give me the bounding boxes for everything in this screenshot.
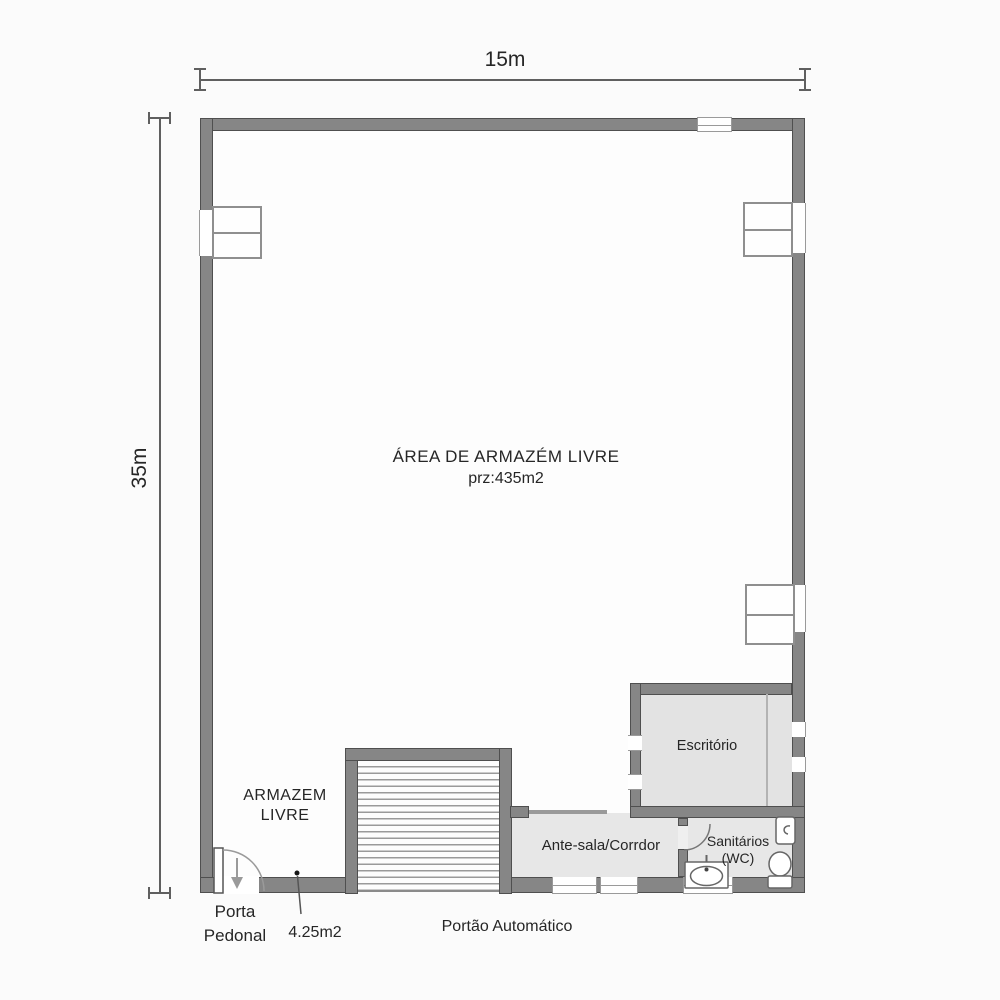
dimension-label-height: 35m xyxy=(128,433,152,503)
window-divider xyxy=(601,885,637,886)
ramp-wall-top xyxy=(345,748,512,761)
dimension-tick-top-left-serif-a xyxy=(194,68,206,70)
dimension-tick-top-right-serif-a xyxy=(799,68,811,70)
door-size-label: 4.25m2 xyxy=(274,924,356,942)
office-west-wall-window-2 xyxy=(628,774,642,790)
dimension-line-top xyxy=(200,79,805,81)
armazem-corner-label-line2: LIVRE xyxy=(225,807,345,825)
antesala-partition-wall xyxy=(527,810,607,814)
dimension-tick-left-bottom xyxy=(149,892,170,894)
pedestrian-door-label-line1: Porta xyxy=(183,902,287,922)
office-right-wall-window-2 xyxy=(791,757,806,772)
wc-wall-west-lower xyxy=(678,849,688,877)
pedestrian-door-opening xyxy=(214,876,259,894)
window-divider xyxy=(745,229,791,231)
office-right-wall-window-1 xyxy=(791,722,806,737)
office-wall-south xyxy=(630,806,805,818)
left-wall-window-icon xyxy=(212,206,262,259)
dimension-tick-top-right xyxy=(804,69,806,90)
bottom-wall-window-1 xyxy=(552,876,597,894)
dimension-line-left xyxy=(159,118,161,894)
bottom-wall-window-3 xyxy=(683,876,733,894)
window-divider xyxy=(684,885,732,886)
dimension-tick-left-bottom-serif-b xyxy=(169,887,171,899)
antesala-corner-post xyxy=(510,806,529,818)
gate-label: Portão Automático xyxy=(417,918,597,936)
window-divider xyxy=(553,885,596,886)
pedestrian-door-label-line2: Pedonal xyxy=(183,926,287,946)
ramp-wall-left xyxy=(345,748,358,894)
dimension-tick-left-top-serif-b xyxy=(169,112,171,124)
window-divider xyxy=(214,232,260,234)
right-wall-window-opening-1 xyxy=(791,203,806,253)
ramp-wall-right xyxy=(499,748,512,894)
wall-bottom-right xyxy=(499,877,805,893)
window-divider xyxy=(698,125,731,126)
top-wall-window-icon xyxy=(697,117,732,132)
dimension-tick-top-left xyxy=(199,69,201,90)
dimension-tick-left-top xyxy=(149,117,170,119)
wc-label-line2: (WC) xyxy=(690,850,786,866)
right-wall-window-icon-1 xyxy=(743,202,793,257)
wc-wall-west-upper xyxy=(678,818,688,826)
dimension-tick-top-left-serif-b xyxy=(194,89,206,91)
gate-ramp-hatch xyxy=(358,761,499,892)
antesala-label: Ante-sala/Corrdor xyxy=(528,837,674,854)
armazem-corner-label-line1: ARMAZEM xyxy=(225,787,345,805)
dimension-tick-left-top-serif-a xyxy=(148,112,150,124)
main-area-title: ÁREA DE ARMAZÉM LIVRE xyxy=(340,447,672,467)
right-wall-window-icon-2 xyxy=(745,584,795,645)
window-divider xyxy=(747,614,793,616)
dimension-tick-left-bottom-serif-a xyxy=(148,887,150,899)
main-area-size: prz:435m2 xyxy=(340,470,672,488)
floor-plan-canvas: 15m 35m xyxy=(0,0,1000,1000)
wc-label-line1: Sanitários xyxy=(690,833,786,849)
dimension-label-width: 15m xyxy=(455,48,555,72)
dimension-tick-top-right-serif-b xyxy=(799,89,811,91)
office-label: Escritório xyxy=(637,738,777,754)
bottom-wall-window-2 xyxy=(600,876,638,894)
wc-door-opening xyxy=(678,826,688,849)
